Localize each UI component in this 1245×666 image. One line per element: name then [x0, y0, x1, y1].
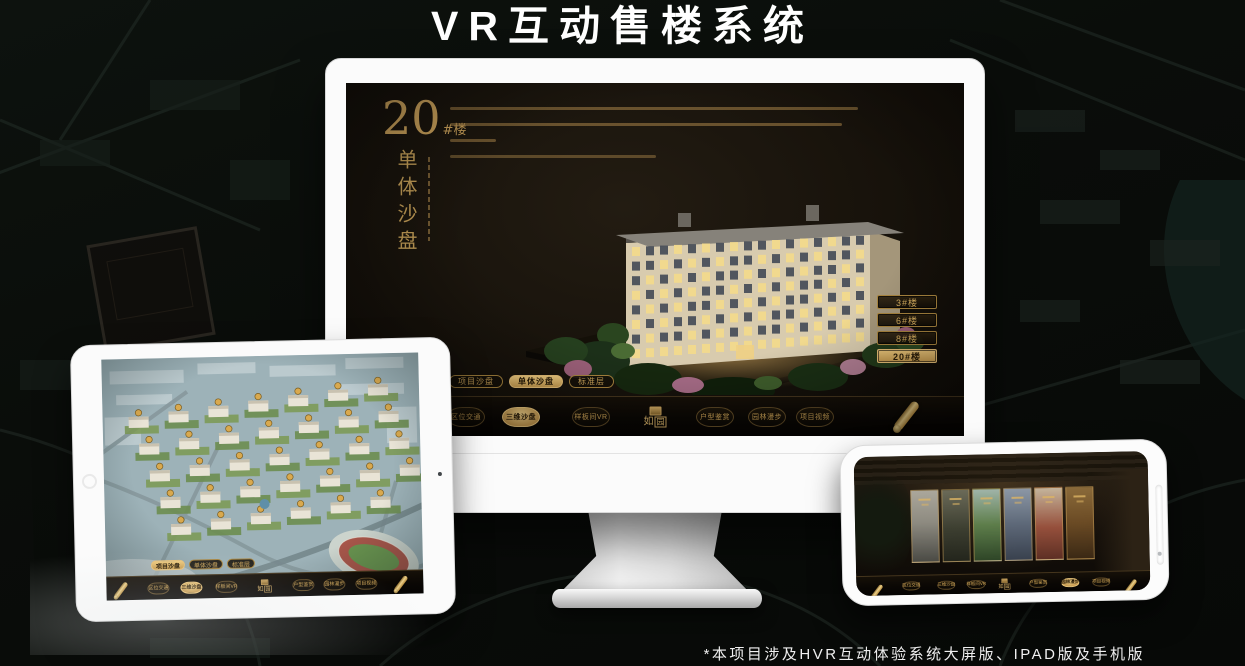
wall-silhouette [1092, 469, 1150, 580]
tablet-screen: 项目沙盘 单体沙盘 标准层 区位交通 三维沙盘 样板间VR 如园 户型鉴赏 园林… [101, 352, 423, 600]
tablet-nav-item-3d-sandtable[interactable]: 三维沙盘 [176, 579, 206, 596]
tablet-nav-item-location-traffic[interactable]: 区位交通 [143, 580, 173, 597]
tablet-brand-logo[interactable]: 如园 [257, 579, 272, 592]
scene-gallery [910, 486, 1094, 563]
phone-nav-item-project-video[interactable]: 项目视频 [1088, 575, 1114, 589]
background-plaque [86, 226, 215, 354]
monitor-mode-tabs: 项目沙盘 单体沙盘 标准层 [449, 375, 614, 388]
monitor-nav-item-floorplan[interactable]: 户型鉴赏 [692, 405, 738, 429]
brand-logo[interactable]: 如园 [644, 406, 667, 427]
scroll-decoration-icon[interactable] [870, 584, 883, 596]
tab-standard-floor[interactable]: 标准层 [569, 375, 614, 388]
scroll-decoration-icon[interactable] [113, 581, 128, 599]
monitor-stand-base [552, 589, 762, 608]
phone-device: 区位交通 三维沙盘 样板间VR 如园 户型鉴赏 园林漫步 项目视频 [839, 439, 1169, 607]
logo-seal-icon [261, 579, 269, 585]
phone-screen: 区位交通 三维沙盘 样板间VR 如园 户型鉴赏 园林漫步 项目视频 [854, 451, 1151, 596]
tablet-nav-item-model-room-vr[interactable]: 样板间VR [211, 578, 241, 595]
phone-camera-dot [1158, 552, 1162, 556]
footnote: *本项目涉及HVR互动体验系统大屏版、IPAD版及手机版 [704, 643, 1145, 664]
logo-seal-icon [1001, 578, 1007, 583]
monitor-nav-item-project-video[interactable]: 项目视频 [792, 405, 838, 429]
aerial-masterplan-view [101, 352, 423, 600]
scene-panel-2[interactable] [941, 489, 971, 563]
scene-panel-4[interactable] [1003, 487, 1033, 561]
tab-project-sandtable[interactable]: 项目沙盘 [449, 375, 503, 388]
monitor-nav-item-garden-walk[interactable]: 园林漫步 [744, 405, 790, 429]
building-button-20[interactable]: 20#楼 [877, 349, 937, 363]
headline-english-caption [428, 157, 430, 241]
page-title: VR互动售楼系统 [0, 0, 1245, 52]
scroll-decoration-icon[interactable] [393, 575, 408, 593]
building-selector: 3#楼 6#楼 8#楼 20#楼 [877, 295, 937, 363]
phone-nav-item-model-room-vr[interactable]: 样板间VR [963, 577, 989, 591]
scene-panel-5[interactable] [1034, 487, 1064, 561]
phone-nav-item-floorplan[interactable]: 户型鉴赏 [1025, 576, 1051, 590]
tablet-nav-item-garden-walk[interactable]: 园林漫步 [319, 576, 349, 593]
phone-nav-bar: 区位交通 三维沙盘 样板间VR 如园 户型鉴赏 园林漫步 项目视频 [856, 570, 1150, 596]
scene-panel-1[interactable] [910, 489, 940, 563]
tablet-nav-item-project-video[interactable]: 项目视频 [351, 575, 381, 592]
building-number: 20 [382, 91, 441, 145]
building-3d-render [508, 155, 928, 395]
tablet-tab-single-sandtable[interactable]: 单体沙盘 [189, 559, 223, 570]
tablet-home-button [82, 474, 97, 489]
poster: VR互动售楼系统 20#楼 单体沙盘 [0, 0, 1245, 666]
tablet-nav-item-floorplan[interactable]: 户型鉴赏 [288, 576, 318, 593]
monitor-nav-item-3d-sandtable[interactable]: 三维沙盘 [498, 405, 544, 429]
scene-panel-6[interactable] [1065, 486, 1095, 560]
monitor-nav-item-model-room-vr[interactable]: 样板间VR [568, 405, 614, 429]
tablet-camera-dot [438, 472, 442, 476]
phone-nav-item-garden-walk[interactable]: 园林漫步 [1057, 575, 1083, 589]
phone-nav-item-location-traffic[interactable]: 区位交通 [898, 579, 924, 593]
phone-nav-item-3d-sandtable[interactable]: 三维沙盘 [933, 578, 959, 592]
building-button-6[interactable]: 6#楼 [877, 313, 937, 327]
phone-brand-logo[interactable]: 如园 [998, 578, 1010, 589]
tablet-device: 项目沙盘 单体沙盘 标准层 区位交通 三维沙盘 样板间VR 如园 户型鉴赏 园林… [70, 337, 456, 623]
scroll-decoration-icon[interactable] [892, 400, 920, 432]
tablet-tab-project-sandtable[interactable]: 项目沙盘 [151, 560, 185, 571]
scene-panel-3[interactable] [972, 488, 1002, 562]
headline-subtitle: 单体沙盘 [392, 149, 421, 257]
tablet-tab-standard-floor[interactable]: 标准层 [227, 558, 255, 569]
tab-single-sandtable[interactable]: 单体沙盘 [509, 375, 563, 388]
building-button-3[interactable]: 3#楼 [877, 295, 937, 309]
scroll-decoration-icon[interactable] [1124, 579, 1137, 595]
logo-seal-icon [649, 406, 661, 415]
building-button-8[interactable]: 8#楼 [877, 331, 937, 345]
